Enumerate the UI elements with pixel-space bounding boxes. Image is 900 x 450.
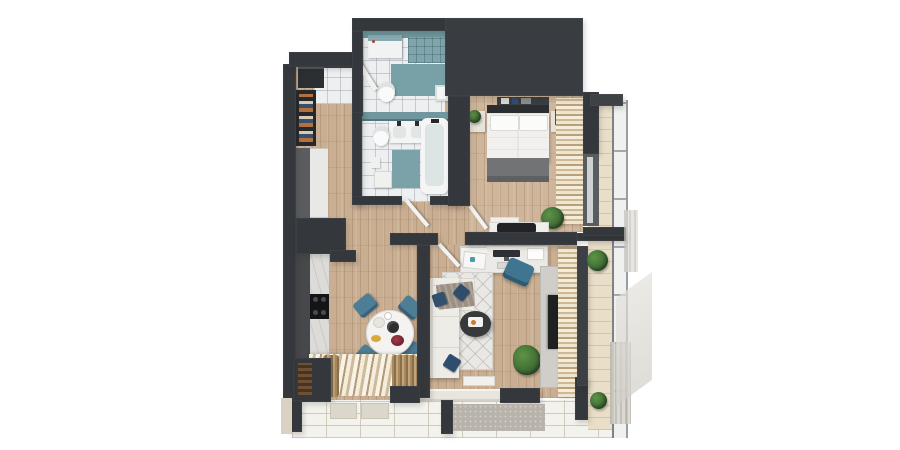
wall-laundry-left [352, 31, 363, 116]
balcony-screen-upper [624, 210, 638, 272]
cooktop-burner-2 [321, 297, 326, 302]
bath-cabinet [374, 171, 392, 188]
living-window-sill [420, 389, 500, 401]
faucet-right [415, 121, 419, 126]
wall-bottom-a [390, 386, 420, 403]
terrace-gray-mat [453, 404, 545, 431]
cooktop-burner-4 [321, 310, 326, 315]
bathroom-toilet [373, 126, 389, 146]
terrace-mat-a [330, 403, 357, 419]
balcony-overhang [590, 94, 623, 106]
shelf-book-3 [521, 98, 531, 104]
wardrobe-clothes [299, 94, 313, 142]
wall-entry-top [289, 52, 359, 67]
bathtub-faucet [431, 119, 439, 123]
terrace-pillar-mid [441, 400, 453, 434]
terrace-left-wedge [281, 398, 292, 434]
toilet-paper-holder [371, 157, 380, 168]
wall-living-right-frame [577, 246, 588, 386]
cooktop-burner-3 [313, 310, 318, 315]
laundry-toilet [378, 82, 395, 102]
wall-balcony-divider [583, 227, 626, 236]
bottom-block-logs [298, 363, 312, 395]
tv [548, 295, 558, 349]
wall-bath-bedroom [448, 96, 470, 206]
wall-laundry-top [352, 18, 456, 31]
floor-plan-stage [0, 0, 900, 450]
wall-top-right-block [445, 18, 583, 96]
wall-bath-bottom-left [352, 196, 402, 205]
wall-left-outer [283, 64, 296, 402]
wall-bottom-b [500, 388, 540, 403]
living-room-curtains [558, 247, 577, 397]
hall-cabinet-front [310, 148, 328, 218]
wall-kitchen-partition [296, 218, 346, 254]
bed-pillow-left [490, 115, 519, 131]
living-room-plant [513, 345, 541, 375]
bedroom-curtains [556, 98, 583, 224]
wall-bath-left [352, 112, 362, 205]
coffee-pot [387, 321, 399, 333]
bathtub-basin [425, 124, 444, 186]
sink-basin-left [393, 126, 406, 138]
wall-dining-living [417, 245, 430, 398]
hall-cabinet-dark [296, 148, 310, 220]
table-flowers [391, 335, 404, 346]
balcony-plant-2 [590, 392, 607, 409]
bed-blanket [487, 158, 549, 182]
washing-machine [368, 35, 402, 58]
shelf-book-2 [512, 98, 518, 104]
shelf-book-1 [501, 98, 509, 104]
wall-living-north [465, 232, 577, 245]
wall-hall-horizontal [390, 233, 438, 245]
table-lemons [371, 335, 381, 342]
washer-indicator [372, 40, 375, 43]
table-cup [384, 312, 392, 320]
laundry-teal-panel [408, 37, 446, 63]
bedroom-balcony-door-glass [587, 157, 593, 223]
terrace-mat-b [361, 403, 389, 419]
table-plate [373, 317, 385, 328]
kitchen-counter-dark [296, 252, 310, 358]
balcony-plant-1 [587, 250, 608, 271]
bath-teal-mat [392, 150, 420, 188]
monitor [493, 250, 520, 257]
wall-partition-step [330, 250, 356, 262]
cooktop-burner-1 [313, 297, 318, 302]
desk-papers [527, 248, 544, 260]
faucet-left [397, 121, 401, 126]
bed-pillow-right [519, 115, 548, 131]
bed-headboard [487, 105, 549, 113]
shoe-cabinet [298, 66, 324, 88]
black-bag [497, 223, 536, 232]
laptop-logo [470, 257, 475, 262]
living-doormat [463, 376, 495, 386]
tray-bowl [471, 320, 476, 325]
